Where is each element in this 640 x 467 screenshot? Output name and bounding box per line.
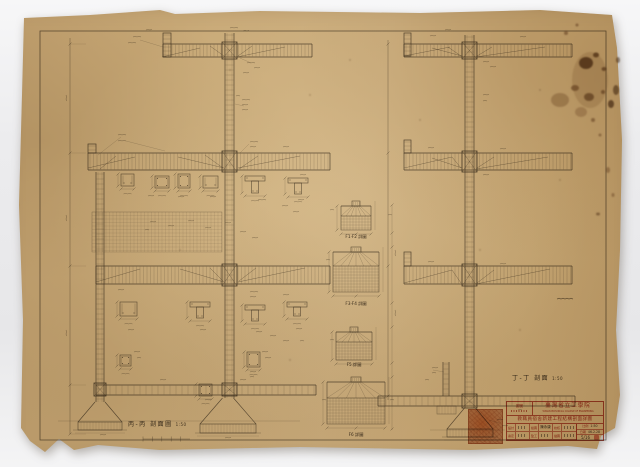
right-section-title-text: 丁-丁 剖面 (512, 375, 549, 382)
tb-field-value (516, 432, 530, 440)
right-section-title: 丁-丁 剖面1:50 (512, 373, 563, 382)
date-value: 46.2.28 (588, 430, 600, 434)
left-section-title-text: 丙-丙 剖面圖 (128, 421, 173, 428)
tb-field-label: 監工 (530, 432, 539, 440)
tb-field-label: 繪圖 (530, 424, 539, 432)
sheet-row: 5/16 (577, 435, 603, 440)
drawing-number-cell: 圖號 (507, 402, 533, 415)
organization-name: 臺灣省立工學院 (533, 402, 603, 410)
paper-shadow-wrap (0, 0, 640, 467)
project-title: 教職員宿舍新建工程結構剖面詳圖 (507, 416, 603, 424)
title-block-grid: 設計 繪圖 陳永康 校核 審定 監工 描圖 比例 1:50 日期 (507, 424, 603, 440)
scanned-blueprint-photo: F1·F2 詳圖 F3·F4 詳圖 F5 詳圖 F6 詳圖 丙-丙 剖面圖1:5… (0, 0, 640, 467)
organization-cell: 臺灣省立工學院 TAIWAN PROVINCIAL COLLEGE OF ENG… (533, 402, 603, 415)
tb-field-label: 審定 (507, 432, 516, 440)
title-block: 圖號 臺灣省立工學院 TAIWAN PROVINCIAL COLLEGE OF … (506, 401, 604, 441)
scale-date-column: 比例 1:50 日期 46.2.28 5/16 (577, 424, 603, 440)
organization-name-en: TAIWAN PROVINCIAL COLLEGE OF ENGINEERING (538, 410, 598, 413)
tb-field-value (562, 424, 577, 432)
scale-label: 比例 (582, 424, 588, 428)
tb-field-value (516, 424, 530, 432)
tb-field-value (562, 432, 577, 440)
approval-stamp (468, 409, 503, 444)
drawing-number-entry-squiggle (511, 410, 529, 412)
tb-field-label: 校核 (553, 424, 562, 432)
right-section-scale: 1:50 (552, 376, 563, 381)
blueprint-paper (0, 0, 640, 467)
title-block-header-row: 圖號 臺灣省立工學院 TAIWAN PROVINCIAL COLLEGE OF … (507, 402, 603, 416)
left-section-title: 丙-丙 剖面圖1:50 (128, 419, 187, 428)
sheet-number: 5/16 (581, 435, 590, 440)
date-label: 日期 (580, 430, 586, 434)
tb-field-label: 設計 (507, 424, 516, 432)
tb-field-value: 陳永康 (539, 424, 553, 432)
tb-field-label: 描圖 (553, 432, 562, 440)
tb-field-value (539, 432, 553, 440)
drawing-number-label: 圖號 (516, 404, 523, 408)
left-section-scale: 1:50 (176, 422, 187, 427)
small-red-stamp (594, 435, 599, 440)
signature-grid: 設計 繪圖 陳永康 校核 審定 監工 描圖 (507, 424, 577, 440)
scale-value: 1:50 (590, 424, 597, 428)
